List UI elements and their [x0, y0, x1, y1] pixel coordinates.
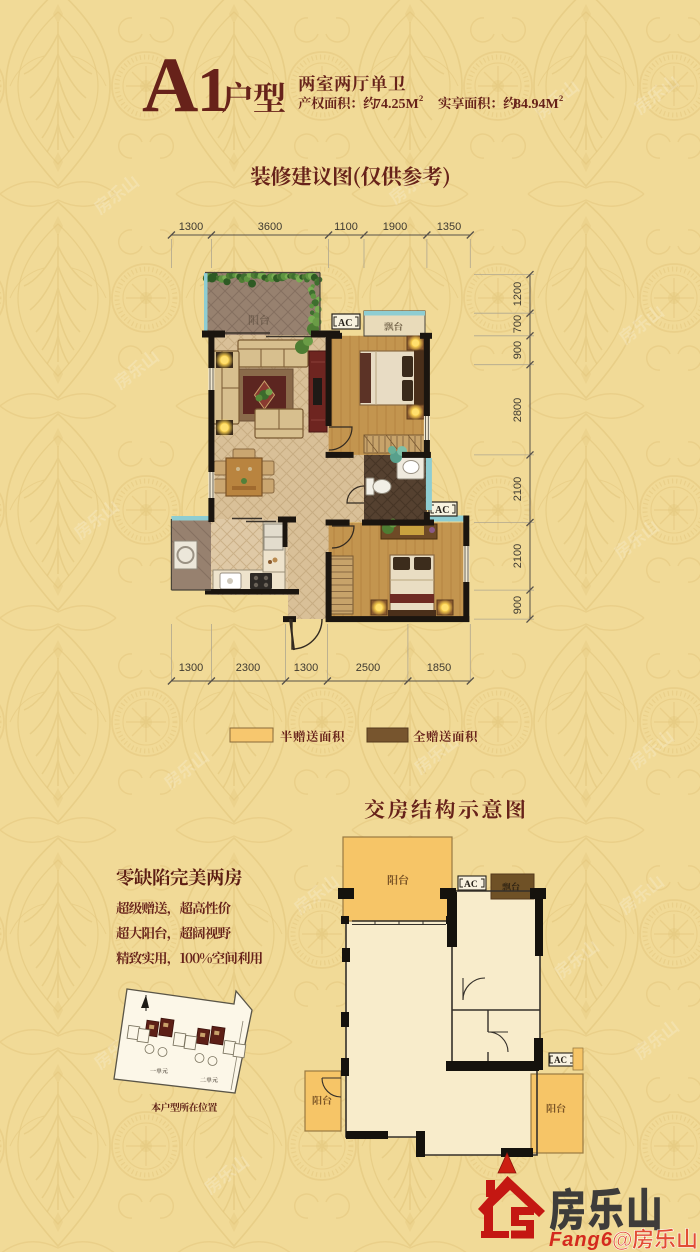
svg-text:1200: 1200 [512, 282, 524, 306]
svg-text:1100: 1100 [334, 221, 358, 233]
svg-text:1300: 1300 [179, 662, 203, 674]
svg-text:84.94M: 84.94M [514, 97, 559, 112]
svg-text:1850: 1850 [427, 662, 451, 674]
svg-text:700: 700 [512, 315, 524, 333]
svg-text:@: @ [612, 1229, 632, 1252]
svg-text:74.25M: 74.25M [374, 97, 419, 112]
svg-text:A: A [142, 41, 198, 128]
svg-text:2: 2 [419, 93, 423, 103]
svg-text:3600: 3600 [258, 221, 282, 233]
svg-text:1350: 1350 [437, 221, 461, 233]
svg-text:2800: 2800 [512, 398, 524, 422]
svg-text:AC: AC [435, 505, 449, 516]
svg-text:900: 900 [512, 596, 524, 614]
svg-text:Fang6: Fang6 [549, 1229, 613, 1251]
svg-text:AC: AC [338, 318, 352, 329]
svg-text:AC: AC [554, 1055, 567, 1065]
svg-text:1300: 1300 [179, 221, 203, 233]
svg-text:2300: 2300 [236, 662, 260, 674]
svg-text:2500: 2500 [356, 662, 380, 674]
svg-text:1: 1 [197, 54, 229, 125]
svg-text:1300: 1300 [294, 662, 318, 674]
svg-text:2: 2 [559, 93, 563, 103]
svg-text:2100: 2100 [512, 477, 524, 501]
svg-text:900: 900 [512, 341, 524, 359]
svg-text:AC: AC [464, 880, 478, 890]
svg-text:2100: 2100 [512, 544, 524, 568]
svg-text:1900: 1900 [383, 221, 407, 233]
